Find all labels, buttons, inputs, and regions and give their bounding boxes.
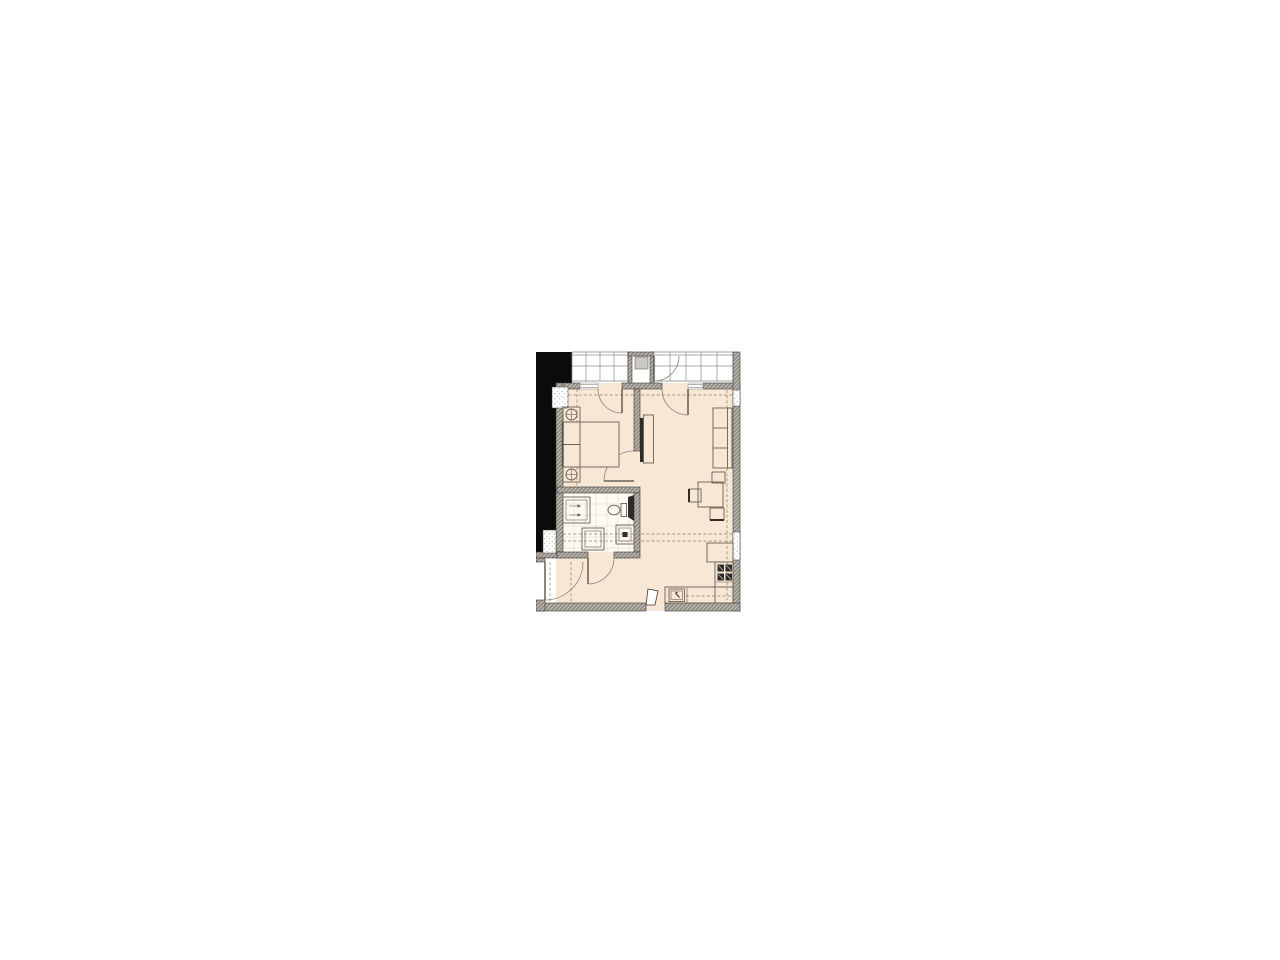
duct <box>628 495 634 521</box>
left-wall <box>556 383 563 552</box>
bedroom-living-wall <box>634 389 640 451</box>
hall-left-wall-bottom <box>536 600 545 611</box>
bathroom-bottom-wall-right <box>614 552 640 558</box>
balcony-glazing-right <box>654 352 733 381</box>
living-right-window <box>733 390 740 406</box>
kitchen-right-window <box>733 532 740 560</box>
bathroom-bottom-wall-left <box>557 552 588 558</box>
washing-machine <box>616 525 634 544</box>
bathroom-top-wall <box>557 487 640 493</box>
shaft <box>635 357 648 369</box>
floor-plan <box>536 350 744 614</box>
bottom-wall-right <box>665 603 740 611</box>
top-wall-window-2 <box>688 383 703 389</box>
double-bed <box>562 422 619 467</box>
balcony-glazing-left <box>572 352 628 381</box>
hall-left-window <box>543 530 556 553</box>
tv <box>640 418 644 462</box>
page-background <box>0 0 1280 960</box>
bathroom-right-wall <box>634 493 640 552</box>
bedroom-left-window <box>552 387 568 408</box>
balcony-closet <box>628 352 654 385</box>
sofa <box>713 408 732 468</box>
floor-plan-drawing <box>536 350 744 614</box>
bottom-wall-left <box>536 603 646 611</box>
hall-left-wall <box>536 558 545 562</box>
top-wall-window-1 <box>580 383 598 389</box>
bathroom-floor <box>563 493 634 552</box>
top-wall-segment <box>622 383 662 389</box>
